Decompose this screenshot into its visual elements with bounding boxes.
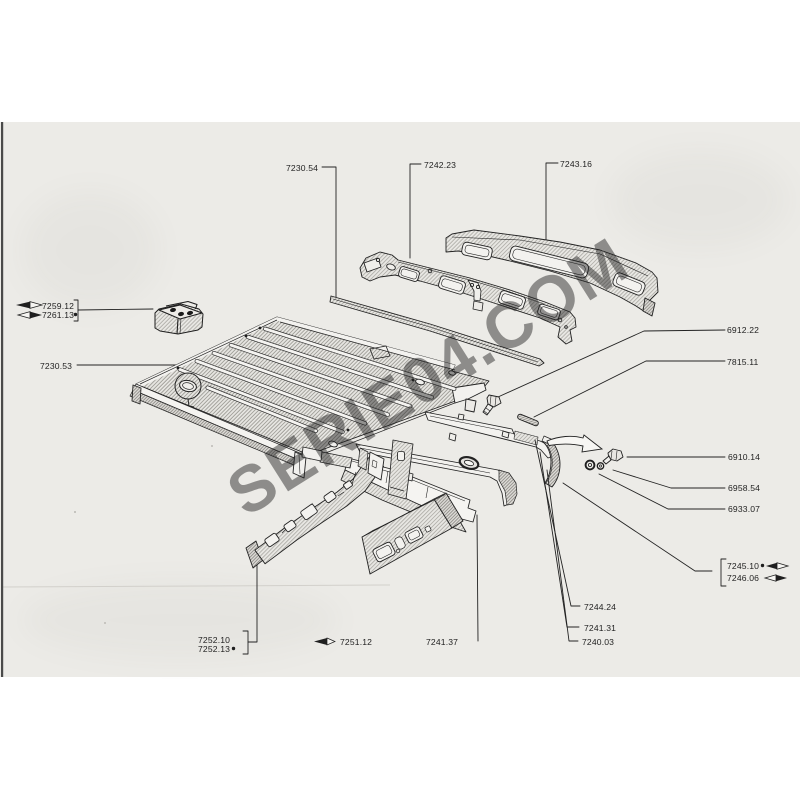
- svg-text:6958.54: 6958.54: [728, 483, 760, 493]
- svg-text:7246.06: 7246.06: [727, 573, 759, 583]
- svg-text:6933.07: 6933.07: [728, 504, 760, 514]
- svg-text:6912.22: 6912.22: [727, 325, 759, 335]
- svg-text:6910.14: 6910.14: [728, 452, 760, 462]
- svg-text:7230.53: 7230.53: [40, 361, 72, 371]
- svg-text:7252.13: 7252.13: [198, 644, 230, 654]
- svg-text:7244.24: 7244.24: [584, 602, 616, 612]
- svg-text:7261.13: 7261.13: [42, 310, 74, 320]
- svg-text:7230.54: 7230.54: [286, 163, 318, 173]
- svg-text:7242.23: 7242.23: [424, 160, 456, 170]
- svg-text:7815.11: 7815.11: [727, 357, 759, 367]
- svg-text:7241.37: 7241.37: [426, 637, 458, 647]
- svg-text:7243.16: 7243.16: [560, 159, 592, 169]
- svg-text:7251.12: 7251.12: [340, 637, 372, 647]
- svg-text:7240.03: 7240.03: [582, 637, 614, 647]
- svg-text:7241.31: 7241.31: [584, 623, 616, 633]
- svg-text:7245.10: 7245.10: [727, 561, 759, 571]
